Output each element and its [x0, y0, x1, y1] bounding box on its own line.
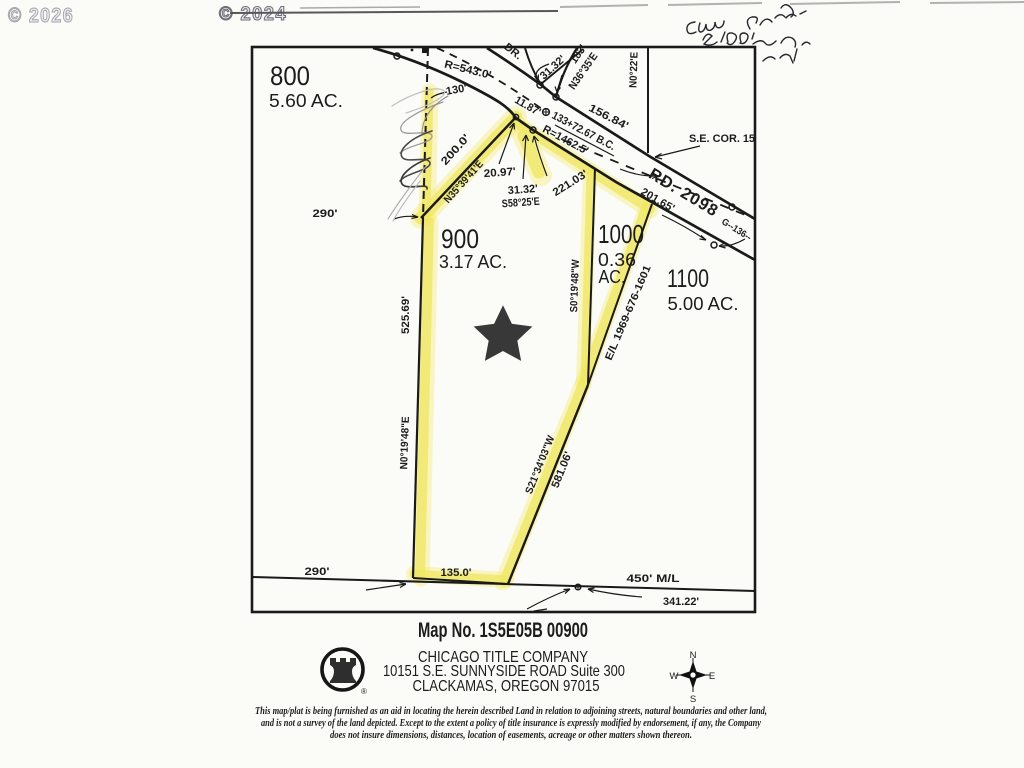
svg-text:W: W	[670, 671, 679, 682]
svg-text:Map No. 1S5E05B 00900: Map No. 1S5E05B 00900	[418, 619, 588, 642]
svg-text:5.00 AC.: 5.00 AC.	[668, 294, 739, 314]
svg-text:3.17 AC.: 3.17 AC.	[439, 252, 507, 272]
svg-text:525.69': 525.69'	[400, 296, 412, 334]
svg-text:®: ®	[361, 687, 367, 696]
svg-text:5.60 AC.: 5.60 AC.	[269, 91, 343, 111]
svg-text:CLACKAMAS, OREGON 97015: CLACKAMAS, OREGON 97015	[413, 678, 600, 695]
svg-text:This map/plat is being furnish: This map/plat is being furnished as an a…	[255, 706, 767, 717]
svg-text:290': 290'	[313, 208, 338, 220]
svg-text:© 2024: © 2024	[219, 4, 287, 25]
svg-text:341.22': 341.22'	[663, 596, 699, 608]
svg-text:1100: 1100	[667, 265, 709, 293]
svg-text:E: E	[709, 671, 715, 682]
svg-text:156.84': 156.84'	[586, 102, 630, 132]
svg-text:1000: 1000	[598, 219, 644, 249]
svg-text:31.32': 31.32'	[507, 183, 538, 197]
svg-text:© 2026: © 2026	[8, 5, 74, 27]
svg-text:290': 290'	[305, 566, 330, 578]
svg-text:20.97': 20.97'	[483, 166, 516, 180]
svg-text:AC.: AC.	[599, 267, 626, 287]
svg-text:and is not a survey of the lan: and is not a survey of the land depicted…	[261, 718, 761, 729]
svg-text:800: 800	[270, 61, 310, 91]
svg-text:S58°25'E: S58°25'E	[501, 196, 540, 211]
svg-text:N0°22'E: N0°22'E	[627, 52, 640, 88]
svg-text:S0°19'48"W: S0°19'48"W	[568, 259, 582, 312]
svg-text:S.E. COR. 15: S.E. COR. 15	[689, 133, 755, 145]
svg-text:G--136--: G--136--	[719, 216, 753, 243]
svg-text:R=543.0': R=543.0'	[443, 58, 493, 81]
svg-text:does not insure dimensions, di: does not insure dimensions, distances, l…	[330, 730, 692, 741]
svg-text:900: 900	[441, 224, 479, 254]
svg-text:N0°19'48"E: N0°19'48"E	[398, 416, 412, 469]
svg-text:S: S	[690, 694, 696, 705]
svg-text:135.0': 135.0'	[441, 567, 472, 579]
svg-text:31.32': 31.32'	[538, 53, 569, 82]
svg-text:450' M/L: 450' M/L	[627, 573, 680, 585]
svg-text:130': 130'	[445, 82, 468, 98]
svg-text:N: N	[690, 650, 697, 661]
